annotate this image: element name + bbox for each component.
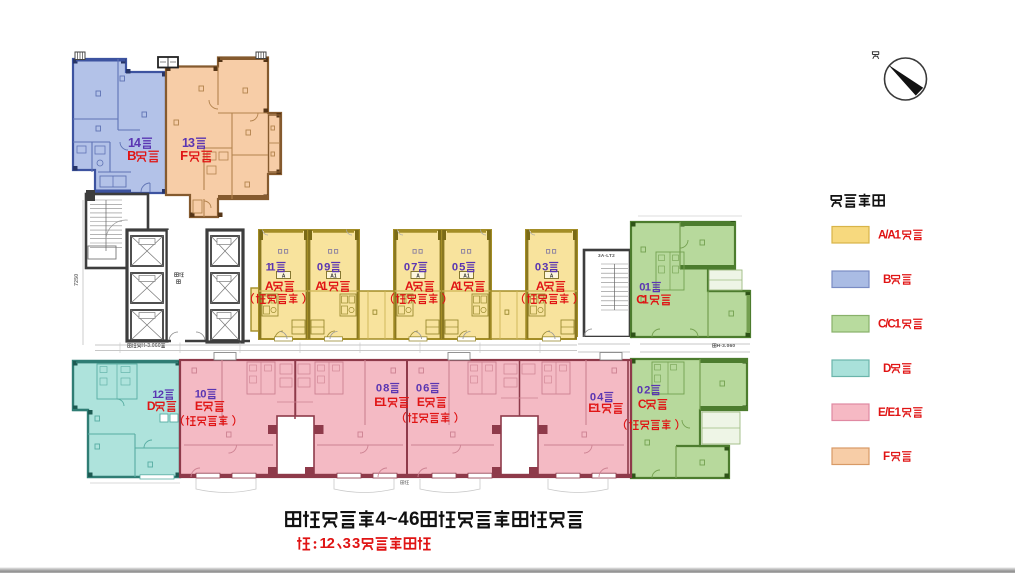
svg-text:A1: A1 [315,279,328,293]
svg-text:B: B [127,148,136,163]
svg-text:07: 07 [404,261,417,273]
svg-text:H-3.060: H-3.060 [141,343,161,349]
svg-text:H-3.060: H-3.060 [717,343,736,349]
svg-text:E: E [417,395,425,409]
svg-text:A: A [282,273,286,279]
svg-text:05: 05 [452,261,465,273]
svg-text:F: F [180,148,188,163]
svg-text:D: D [147,399,156,413]
svg-text:F: F [883,450,890,463]
svg-text:A: A [405,279,414,293]
svg-text:E/E1: E/E1 [878,406,902,419]
svg-text:08: 08 [376,382,389,394]
svg-text:E1: E1 [374,395,387,409]
svg-text:11: 11 [266,261,276,273]
svg-text:C/C1: C/C1 [878,317,902,330]
svg-text:A: A [265,279,274,293]
svg-text:D: D [883,362,891,375]
svg-text:7250: 7250 [74,274,80,286]
svg-text:A: A [550,273,554,279]
svg-text:E1: E1 [588,401,601,415]
svg-text:4~46: 4~46 [376,509,420,530]
svg-text:A/A1: A/A1 [878,228,902,241]
svg-text:A1: A1 [450,279,463,293]
svg-text:03: 03 [535,261,548,273]
svg-text:09: 09 [317,261,330,273]
svg-text:12: 12 [320,536,335,552]
svg-text:E: E [195,399,203,413]
svg-text:3A-LT2: 3A-LT2 [598,253,615,258]
svg-text:A1: A1 [463,273,470,279]
svg-text:A: A [536,279,545,293]
svg-text:C: C [638,397,647,411]
svg-text:33: 33 [343,536,361,552]
svg-text:C1: C1 [636,292,649,306]
svg-text:B: B [883,273,891,286]
svg-text:A1: A1 [330,273,337,279]
svg-text:A: A [416,273,420,279]
svg-text:06: 06 [416,382,429,394]
svg-text:02: 02 [637,384,650,396]
